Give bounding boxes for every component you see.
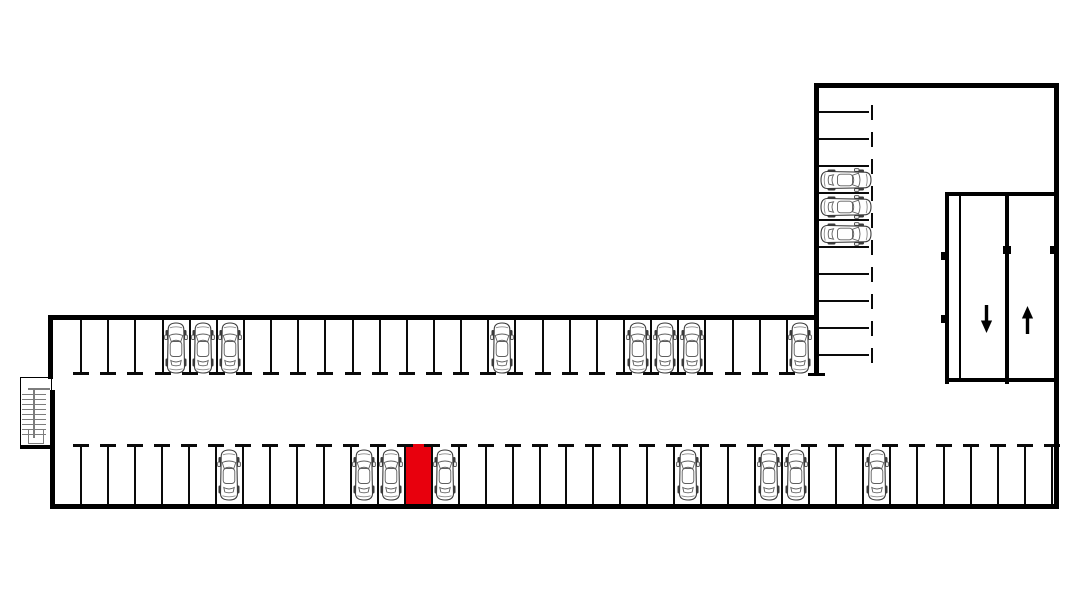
- parking-space[interactable]: [593, 445, 620, 504]
- parking-space[interactable]: [819, 112, 874, 139]
- parking-space[interactable]: [135, 318, 162, 375]
- parking-space[interactable]: [819, 166, 874, 193]
- parking-space[interactable]: [674, 445, 701, 504]
- ramp-wall-tab-lower: [941, 315, 949, 323]
- parking-space[interactable]: [190, 318, 217, 375]
- parking-space[interactable]: [944, 445, 971, 504]
- parking-space[interactable]: [434, 318, 461, 375]
- parking-space[interactable]: [566, 445, 593, 504]
- parking-space[interactable]: [378, 445, 405, 504]
- stair-landing-rail: [28, 388, 50, 390]
- parking-space[interactable]: [108, 318, 135, 375]
- ramp-up-arrow-icon: [1021, 306, 1034, 334]
- parking-space[interactable]: [351, 445, 378, 504]
- parking-space[interactable]: [432, 445, 459, 504]
- parking-space[interactable]: [163, 318, 190, 375]
- parking-space[interactable]: [54, 318, 81, 375]
- parking-space[interactable]: [515, 318, 542, 375]
- parking-space[interactable]: [819, 301, 874, 328]
- parking-space[interactable]: [836, 445, 863, 504]
- ramp-bottom-wall: [945, 378, 1059, 382]
- parking-space[interactable]: [728, 445, 755, 504]
- parking-space[interactable]: [620, 445, 647, 504]
- parking-space[interactable]: [513, 445, 540, 504]
- parking-space[interactable]: [243, 445, 270, 504]
- ramp-down-lane: [961, 196, 1005, 378]
- parking-space[interactable]: [819, 328, 874, 355]
- parking-space[interactable]: [297, 445, 324, 504]
- parking-space[interactable]: [325, 318, 352, 375]
- parking-space[interactable]: [705, 318, 732, 375]
- parking-space[interactable]: [461, 318, 488, 375]
- ramp-wall-tab-upper: [941, 252, 949, 260]
- parking-space[interactable]: [488, 318, 515, 375]
- stair-inner-box: [28, 429, 44, 444]
- parking-space[interactable]: [108, 445, 135, 504]
- parking-floor-plan: [0, 0, 1080, 592]
- parking-space[interactable]: [819, 274, 874, 301]
- parking-space[interactable]: [819, 247, 874, 274]
- parking-space[interactable]: [540, 445, 567, 504]
- parking-space[interactable]: [647, 445, 674, 504]
- parking-space[interactable]: [407, 318, 434, 375]
- parking-space[interactable]: [459, 445, 486, 504]
- wing-left-wall: [814, 83, 819, 376]
- parking-space[interactable]: [890, 445, 917, 504]
- parking-space[interactable]: [782, 445, 809, 504]
- parking-space[interactable]: [244, 318, 271, 375]
- parking-space[interactable]: [651, 318, 678, 375]
- parking-space[interactable]: [543, 318, 570, 375]
- parking-space[interactable]: [597, 318, 624, 375]
- outer-top-wall: [48, 315, 819, 320]
- parking-space[interactable]: [486, 445, 513, 504]
- parking-space[interactable]: [733, 318, 760, 375]
- outer-left-wall-upper: [48, 315, 53, 379]
- ramp-down-arrow-icon: [980, 305, 993, 333]
- parking-space[interactable]: [787, 318, 814, 375]
- parking-space[interactable]: [678, 318, 705, 375]
- outer-right-wall: [1054, 83, 1059, 509]
- parking-space[interactable]: [380, 318, 407, 375]
- parking-space[interactable]: [760, 318, 787, 375]
- parking-space[interactable]: [405, 445, 432, 504]
- parking-space[interactable]: [819, 193, 874, 220]
- parking-space[interactable]: [998, 445, 1025, 504]
- parking-space[interactable]: [819, 139, 874, 166]
- parking-space[interactable]: [819, 220, 874, 247]
- ramp-left-wall: [945, 192, 949, 384]
- staircase-bottom-edge: [20, 445, 52, 449]
- parking-space[interactable]: [863, 445, 890, 504]
- parking-space[interactable]: [271, 318, 298, 375]
- parking-space[interactable]: [917, 445, 944, 504]
- parking-space[interactable]: [298, 318, 325, 375]
- ramp-up-lane: [1009, 196, 1054, 378]
- parking-space[interactable]: [624, 318, 651, 375]
- parking-space[interactable]: [162, 445, 189, 504]
- parking-space[interactable]: [270, 445, 297, 504]
- parking-space[interactable]: [819, 85, 874, 112]
- wing-top-wall: [814, 83, 1059, 88]
- parking-space[interactable]: [189, 445, 216, 504]
- outer-bottom-wall: [50, 504, 1059, 509]
- parking-space[interactable]: [135, 445, 162, 504]
- parking-space[interactable]: [1025, 445, 1052, 504]
- parking-space[interactable]: [755, 445, 782, 504]
- parking-space[interactable]: [324, 445, 351, 504]
- parking-space[interactable]: [809, 445, 836, 504]
- parking-space[interactable]: [81, 318, 108, 375]
- parking-space[interactable]: [701, 445, 728, 504]
- parking-space[interactable]: [971, 445, 998, 504]
- parking-space[interactable]: [570, 318, 597, 375]
- parking-space[interactable]: [216, 445, 243, 504]
- wing-left-wall-cap: [808, 373, 825, 376]
- parking-space[interactable]: [353, 318, 380, 375]
- parking-space[interactable]: [54, 445, 81, 504]
- parking-space[interactable]: [217, 318, 244, 375]
- parking-space[interactable]: [81, 445, 108, 504]
